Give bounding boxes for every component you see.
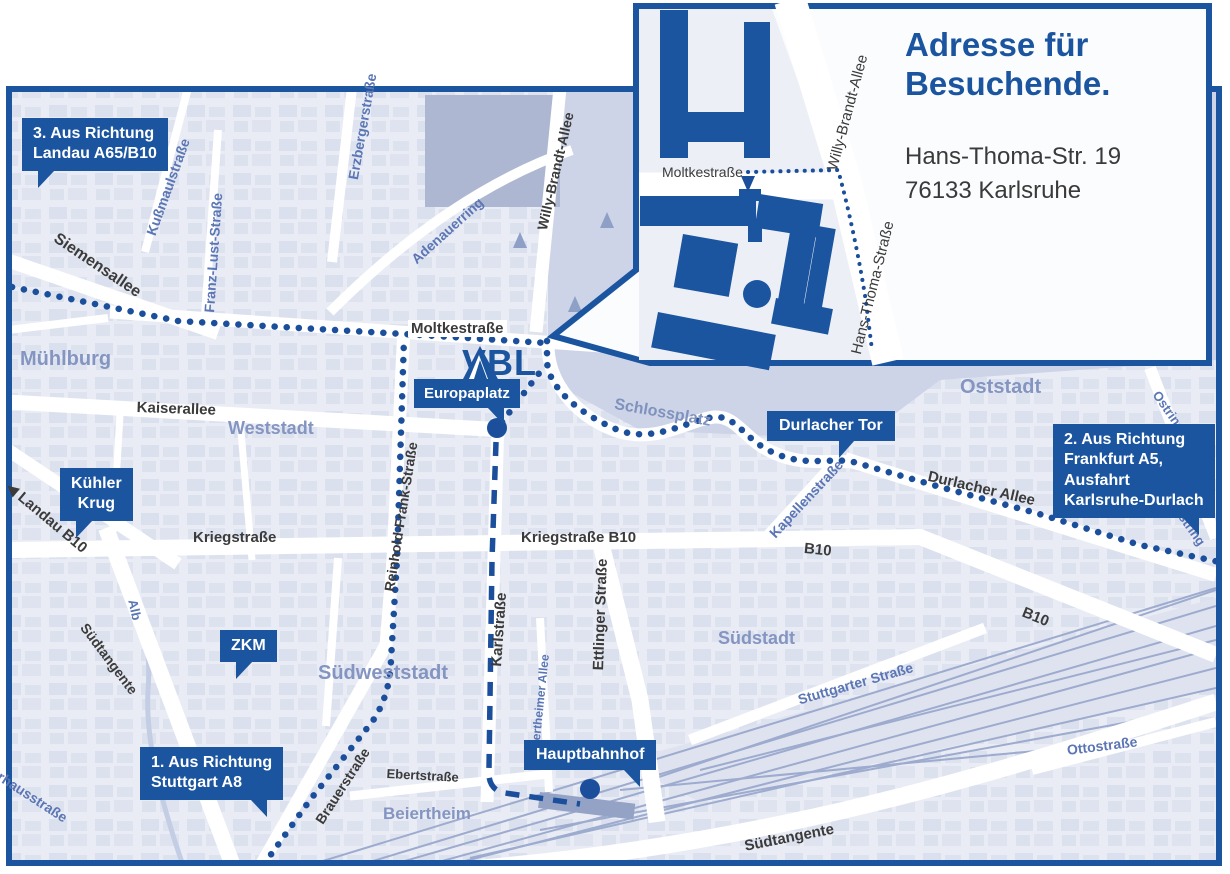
marker-hauptbahnhof-label: Hauptbahnhof	[536, 746, 644, 763]
marker-tail	[236, 661, 253, 679]
inset-address-line2: 76133 Karlsruhe	[905, 174, 1121, 208]
marker-europaplatz: Europaplatz	[414, 379, 520, 408]
marker-stuttgart-line1: 1. Aus Richtung	[151, 753, 272, 773]
marker-landau-line2: Landau A65/B10	[33, 144, 157, 164]
vbl-triangle-icon	[462, 346, 500, 382]
inset-title-line2: Besuchende.	[905, 65, 1110, 104]
marker-tail	[487, 407, 504, 425]
marker-durlacher-tor-label: Durlacher Tor	[779, 417, 883, 434]
marker-stuttgart-line2: Stuttgart A8	[151, 773, 272, 793]
marker-kuehler-krug-line2: Krug	[71, 494, 122, 514]
marker-tail	[839, 440, 855, 458]
marker-hauptbahnhof: Hauptbahnhof	[524, 740, 656, 770]
marker-frankfurt-line2: Frankfurt A5,	[1064, 450, 1204, 470]
marker-tail	[76, 520, 93, 538]
marker-tail	[623, 769, 640, 787]
marker-landau-line1: 3. Aus Richtung	[33, 124, 157, 144]
inset-address: Hans-Thoma-Str. 19 76133 Karlsruhe	[905, 140, 1121, 207]
vbl-logo: VBL	[462, 346, 537, 379]
marker-durlacher-tor: Durlacher Tor	[767, 411, 895, 441]
marker-tail	[250, 799, 267, 817]
marker-europaplatz-label: Europaplatz	[424, 385, 510, 402]
marker-landau: 3. Aus Richtung Landau A65/B10	[22, 118, 168, 171]
marker-kuehler-krug: Kühler Krug	[60, 468, 133, 521]
inset-address-line1: Hans-Thoma-Str. 19	[905, 140, 1121, 174]
marker-zkm-label: ZKM	[231, 637, 266, 654]
karlsruhe-route-map: VBL 3. Aus Richtung Landau A65/B10 2. Au…	[0, 0, 1230, 874]
marker-zkm: ZKM	[220, 630, 277, 662]
marker-kuehler-krug-line1: Kühler	[71, 474, 122, 494]
inset-title: Adresse für Besuchende.	[905, 26, 1110, 104]
marker-tail	[1182, 517, 1199, 535]
marker-tail	[38, 170, 55, 188]
inset-title-line1: Adresse für	[905, 26, 1110, 65]
marker-stuttgart: 1. Aus Richtung Stuttgart A8	[140, 747, 283, 800]
marker-frankfurt: 2. Aus Richtung Frankfurt A5, Ausfahrt K…	[1053, 424, 1215, 518]
marker-frankfurt-line1: 2. Aus Richtung	[1064, 430, 1204, 450]
hauptbahnhof-dot	[580, 779, 600, 799]
marker-frankfurt-line4: Karlsruhe-Durlach	[1064, 491, 1204, 511]
marker-frankfurt-line3: Ausfahrt	[1064, 471, 1204, 491]
